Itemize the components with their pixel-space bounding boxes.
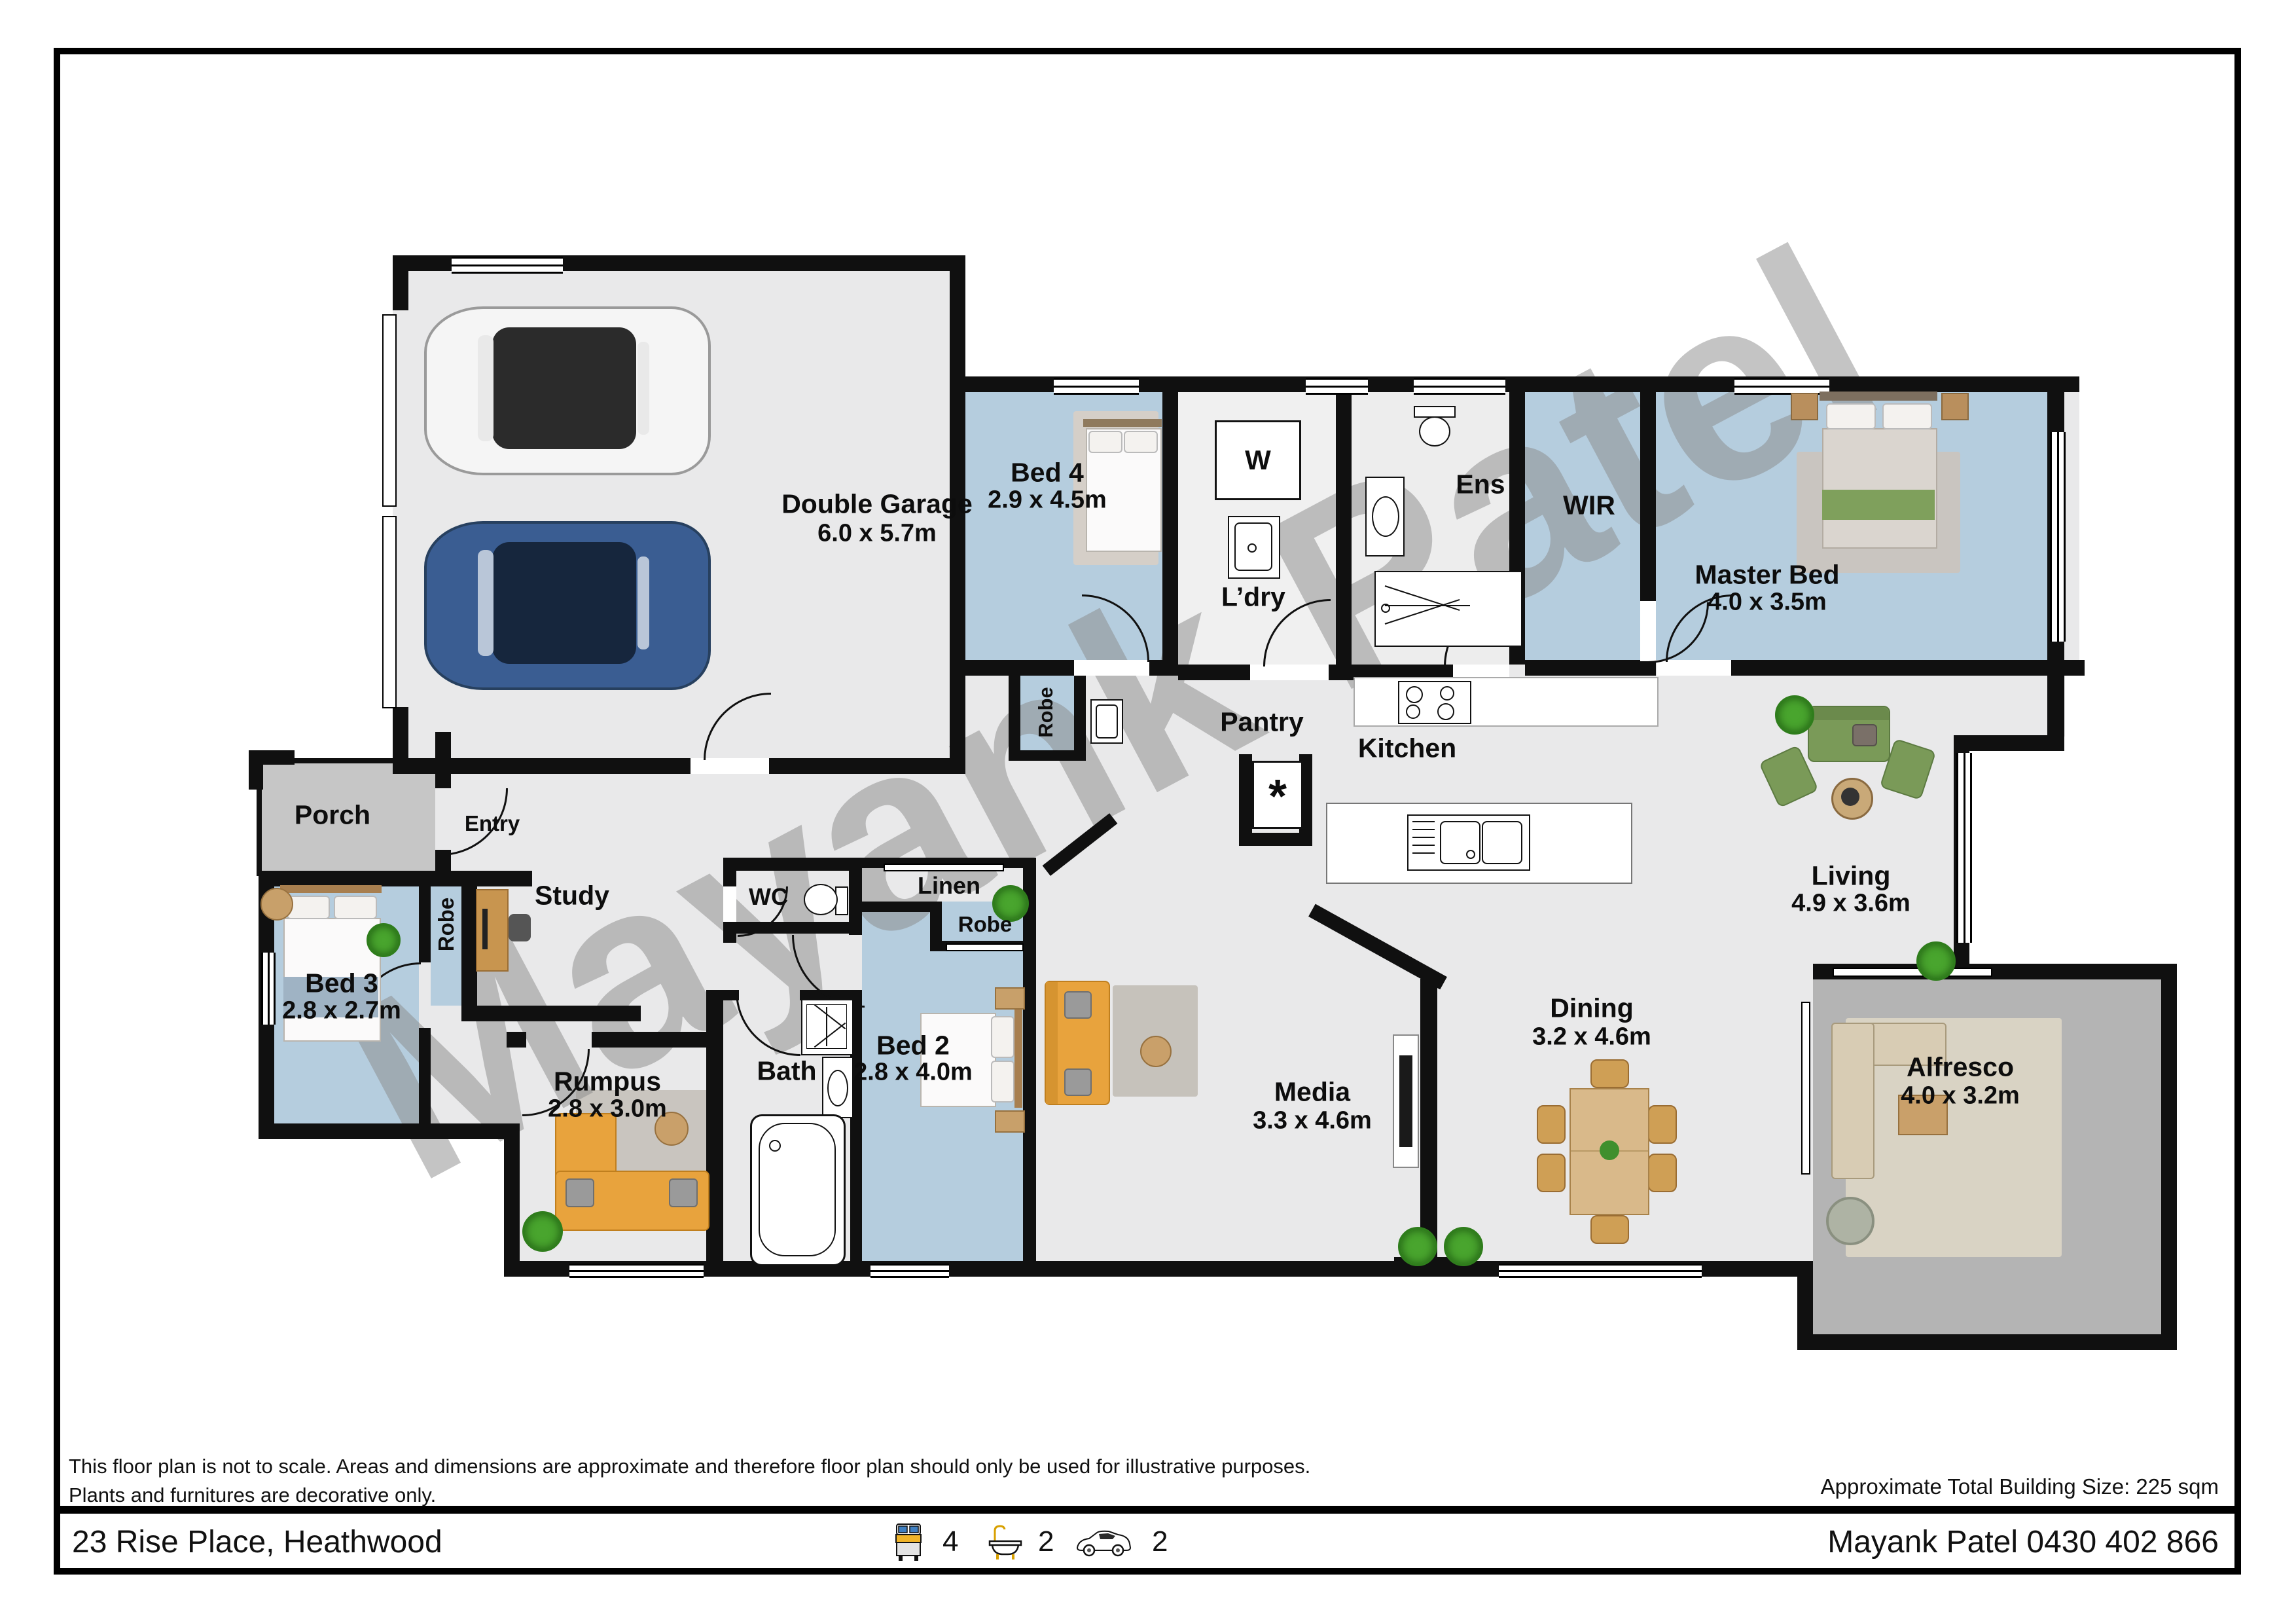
pantry-star: * bbox=[1268, 770, 1287, 824]
chair-icon bbox=[1648, 1154, 1677, 1192]
bed-pillow bbox=[1088, 431, 1122, 453]
nightstand bbox=[1791, 393, 1818, 420]
room-label-bath: Bath bbox=[757, 1056, 816, 1087]
wall-segment bbox=[1420, 979, 1437, 1264]
disclaimer-line1: This floor plan is not to scale. Areas a… bbox=[69, 1455, 1310, 1478]
wall-segment bbox=[1329, 665, 1352, 680]
chair-icon bbox=[509, 914, 531, 941]
sink-bowl bbox=[1440, 821, 1480, 864]
car-windshield bbox=[478, 550, 493, 656]
shower-line bbox=[1385, 599, 1460, 625]
window bbox=[452, 257, 563, 274]
wall-segment bbox=[1162, 383, 1178, 676]
shrub-icon bbox=[1826, 1197, 1874, 1245]
wall-segment bbox=[504, 1123, 520, 1277]
room-dims-media: 3.3 x 4.6m bbox=[1253, 1107, 1372, 1135]
wall-segment bbox=[1640, 383, 1656, 602]
wall-segment bbox=[1074, 676, 1086, 761]
wall-segment bbox=[1009, 676, 1020, 761]
wall-segment bbox=[1813, 1334, 2177, 1350]
room-label-porch: Porch bbox=[295, 800, 370, 831]
bed-pillow bbox=[1826, 403, 1876, 429]
window bbox=[1054, 378, 1139, 395]
wall-segment bbox=[249, 750, 263, 790]
wall-segment bbox=[1149, 660, 1178, 676]
sink-icon bbox=[1407, 814, 1530, 871]
room-dims-bed4: 2.9 x 4.5m bbox=[988, 486, 1107, 515]
garage-door-panel bbox=[382, 314, 397, 507]
room-label-media: Media bbox=[1274, 1077, 1350, 1108]
wall-segment bbox=[1954, 735, 2064, 751]
bath-count: 2 bbox=[1038, 1525, 1054, 1558]
door-gap bbox=[1074, 660, 1149, 676]
burner bbox=[1406, 686, 1423, 703]
room-dims-garage: 6.0 x 5.7m bbox=[817, 520, 937, 548]
room-dims-dining: 3.2 x 4.6m bbox=[1532, 1023, 1651, 1051]
wall-segment bbox=[419, 1028, 431, 1123]
wall-segment bbox=[862, 902, 930, 912]
burner bbox=[1406, 704, 1420, 719]
faucet bbox=[1466, 850, 1475, 859]
shower-icon bbox=[1374, 571, 1522, 647]
floor-plan-page: { "watermark": "Mayank Patel", "colors":… bbox=[0, 0, 2296, 1623]
tv-screen bbox=[1399, 1055, 1412, 1147]
car-icon bbox=[424, 306, 711, 475]
wall-segment bbox=[950, 660, 1074, 676]
door-gap bbox=[691, 758, 769, 774]
room-label-dining: Dining bbox=[1550, 993, 1634, 1024]
dining-table-icon bbox=[1570, 1088, 1649, 1215]
disclaimer-line2: Plants and furnitures are decorative onl… bbox=[69, 1484, 436, 1507]
wall-segment bbox=[592, 1032, 706, 1048]
vanity-icon bbox=[822, 1057, 853, 1118]
wall-segment bbox=[1336, 383, 1352, 665]
car-windshield bbox=[478, 335, 493, 441]
sink-bowl bbox=[1482, 821, 1522, 864]
nightstand bbox=[995, 1110, 1025, 1133]
nightstand bbox=[1941, 393, 1969, 420]
shower-line bbox=[1385, 605, 1470, 606]
sink-basin bbox=[1096, 704, 1118, 739]
sofa-icon bbox=[555, 1171, 709, 1231]
plant-icon bbox=[1444, 1227, 1483, 1266]
sliding-door bbox=[946, 943, 1024, 951]
bed-pillow bbox=[991, 1016, 1014, 1058]
room-label-master: Master Bed bbox=[1695, 560, 1839, 591]
door-gap bbox=[1250, 665, 1329, 680]
car-count: 2 bbox=[1152, 1525, 1168, 1558]
side-table bbox=[1140, 1036, 1172, 1067]
pantry-cabinet: * bbox=[1252, 761, 1303, 829]
bed-headboard bbox=[280, 885, 382, 893]
room-label-alfresco: Alfresco bbox=[1907, 1052, 2014, 1083]
nightstand bbox=[995, 987, 1025, 1010]
chair-icon bbox=[1590, 1059, 1629, 1088]
sliding-door bbox=[884, 864, 1004, 871]
window bbox=[1414, 378, 1505, 395]
car-icon bbox=[424, 521, 711, 690]
coffee-table-icon bbox=[1831, 778, 1873, 820]
car-count-icon bbox=[1073, 1527, 1134, 1559]
window bbox=[1499, 1264, 1702, 1278]
car-rear-window bbox=[637, 556, 649, 649]
wall-segment bbox=[435, 732, 451, 788]
wall-segment bbox=[723, 858, 862, 871]
plant-icon bbox=[1775, 695, 1814, 735]
sofa-icon bbox=[1808, 706, 1890, 762]
address: 23 Rise Place, Heathwood bbox=[72, 1524, 442, 1560]
chair-icon bbox=[1537, 1154, 1566, 1192]
desk-monitor bbox=[482, 909, 488, 949]
bed-pillow bbox=[287, 896, 330, 919]
bathtub-drain bbox=[769, 1140, 781, 1152]
cooktop-icon bbox=[1398, 681, 1471, 724]
bed-headboard bbox=[1083, 419, 1162, 427]
wall-segment bbox=[393, 255, 408, 310]
building-size: Approximate Total Building Size: 225 sqm bbox=[1821, 1474, 2219, 1499]
shower-line bbox=[1385, 585, 1460, 611]
car-rear-window bbox=[637, 342, 649, 435]
plant-icon bbox=[522, 1211, 563, 1252]
room-label-ldry: L’dry bbox=[1221, 582, 1285, 613]
sink-basin bbox=[827, 1070, 848, 1106]
sofa-icon bbox=[1045, 981, 1110, 1105]
bed-pillow bbox=[1882, 403, 1932, 429]
vanity-icon bbox=[1365, 477, 1405, 556]
wall-segment bbox=[1731, 660, 2085, 676]
room-label-robe-bed4: Robe bbox=[1034, 687, 1058, 738]
sofa-back bbox=[1046, 982, 1058, 1104]
door-gap bbox=[1657, 660, 1731, 676]
room-label-wc: WC bbox=[749, 883, 788, 911]
room-label-kitchen: Kitchen bbox=[1358, 733, 1456, 764]
car-roof bbox=[492, 542, 636, 664]
wall-segment bbox=[1525, 660, 1656, 676]
toilet-icon bbox=[1419, 416, 1450, 447]
room-dims-master: 4.0 x 3.5m bbox=[1708, 589, 1827, 617]
wall-segment bbox=[419, 871, 431, 962]
wall-segment bbox=[950, 376, 965, 774]
bathtub-icon bbox=[750, 1114, 846, 1266]
wall-segment bbox=[2161, 964, 2177, 1350]
desk-icon bbox=[476, 889, 509, 972]
room-dims-living: 4.9 x 3.6m bbox=[1791, 890, 1910, 918]
drainer bbox=[1412, 821, 1435, 863]
bed-pillow bbox=[991, 1061, 1014, 1103]
plant-icon bbox=[1398, 1227, 1437, 1266]
room-label-linen: Linen bbox=[918, 872, 980, 900]
plant-icon bbox=[1916, 941, 1956, 981]
side-table bbox=[260, 888, 293, 921]
chair-icon bbox=[1537, 1105, 1566, 1144]
garage-door-panel bbox=[382, 516, 397, 708]
sliding-door bbox=[1801, 1002, 1810, 1175]
bed-count-icon bbox=[894, 1523, 923, 1562]
car-roof bbox=[492, 327, 636, 449]
wall-segment bbox=[950, 255, 965, 392]
room-label-bed3: Bed 3 bbox=[305, 968, 378, 999]
bed-headboard bbox=[1820, 392, 1937, 401]
window bbox=[569, 1264, 704, 1278]
tv-unit-icon bbox=[1393, 1034, 1419, 1168]
room-label-bed2: Bed 2 bbox=[876, 1030, 950, 1061]
room-dims-rumpus: 2.8 x 3.0m bbox=[548, 1095, 667, 1123]
bed-count: 4 bbox=[942, 1525, 958, 1558]
bath-count-icon bbox=[987, 1523, 1024, 1561]
window bbox=[1306, 378, 1368, 395]
room-label-garage: Double Garage bbox=[781, 489, 973, 520]
sofa-back bbox=[1809, 707, 1889, 720]
window bbox=[261, 953, 276, 1025]
room-dims-bed2: 2.8 x 4.0m bbox=[853, 1059, 973, 1087]
bed-headboard bbox=[1014, 1010, 1022, 1108]
window bbox=[870, 1264, 949, 1278]
toilet-icon bbox=[804, 884, 838, 915]
wall-segment bbox=[1023, 902, 1036, 1277]
wall-segment bbox=[461, 871, 477, 1021]
wall-segment bbox=[769, 758, 965, 774]
sliding-door bbox=[1833, 968, 1992, 977]
room-label-study: Study bbox=[535, 881, 609, 911]
sink-icon bbox=[1090, 699, 1123, 744]
sink-drain bbox=[1247, 543, 1257, 553]
washer-icon: W bbox=[1215, 420, 1301, 500]
room-label-rumpus: Rumpus bbox=[554, 1067, 661, 1097]
room-label-robe-bed3: Robe bbox=[434, 898, 459, 952]
bed-pillow bbox=[334, 896, 377, 919]
room-dims-alfresco: 4.0 x 3.2m bbox=[1901, 1082, 2020, 1110]
room-label-ens: Ens bbox=[1456, 469, 1505, 500]
wall-segment bbox=[1178, 665, 1250, 680]
outdoor-sofa-icon bbox=[1831, 1023, 1874, 1179]
chair-icon bbox=[1648, 1105, 1677, 1144]
bed-pillow bbox=[1124, 431, 1158, 453]
sink-icon bbox=[1228, 516, 1280, 579]
bed-throw bbox=[1822, 490, 1935, 520]
sink-basin bbox=[1372, 496, 1399, 537]
room-label-entry: Entry bbox=[465, 811, 520, 836]
bed-icon bbox=[1820, 392, 1937, 549]
agent-contact: Mayank Patel 0430 402 866 bbox=[1827, 1524, 2219, 1560]
wall-segment bbox=[1009, 750, 1086, 761]
chair-icon bbox=[1590, 1215, 1629, 1244]
plant-icon bbox=[367, 923, 401, 957]
window bbox=[2050, 432, 2066, 642]
wall-segment bbox=[507, 1032, 526, 1048]
burner bbox=[1440, 686, 1454, 701]
room-label-robe-bed2: Robe bbox=[958, 912, 1013, 937]
room-label-pantry: Pantry bbox=[1220, 707, 1304, 738]
table-plant bbox=[1600, 1140, 1619, 1160]
shower-icon bbox=[801, 999, 853, 1055]
wall-segment bbox=[1239, 754, 1252, 846]
door-gap bbox=[723, 886, 736, 924]
wall-segment bbox=[259, 1123, 520, 1139]
room-label-wir: WIR bbox=[1563, 490, 1615, 521]
washer-label: W bbox=[1245, 445, 1271, 476]
wall-segment bbox=[706, 990, 723, 1277]
bed-duvet bbox=[1822, 428, 1937, 549]
window bbox=[1956, 753, 1972, 943]
room-dims-bed3: 2.8 x 2.7m bbox=[282, 997, 401, 1025]
room-label-living: Living bbox=[1812, 861, 1891, 892]
room-label-bed4: Bed 4 bbox=[1011, 458, 1084, 488]
wall-segment bbox=[461, 1006, 641, 1021]
burner bbox=[1437, 703, 1454, 720]
